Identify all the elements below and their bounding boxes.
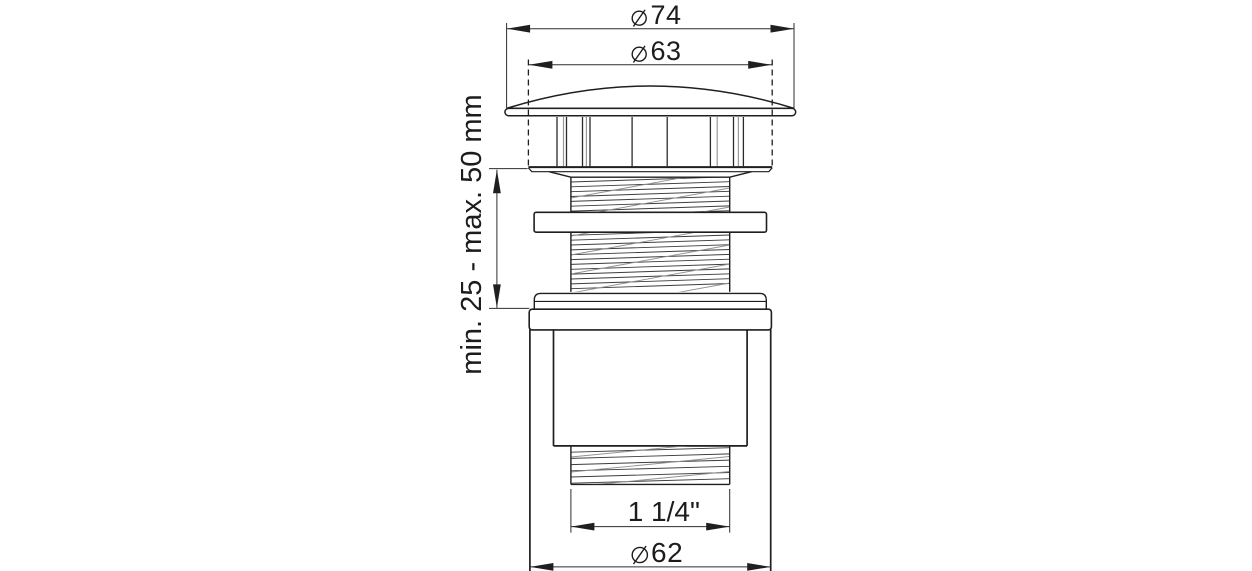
svg-text:62: 62 [651,537,683,568]
svg-text:min. 25 - max. 50 mm: min. 25 - max. 50 mm [456,94,488,374]
svg-text:63: 63 [651,36,682,66]
svg-text:1 1/4": 1 1/4" [628,496,700,527]
svg-text:74: 74 [651,0,682,30]
